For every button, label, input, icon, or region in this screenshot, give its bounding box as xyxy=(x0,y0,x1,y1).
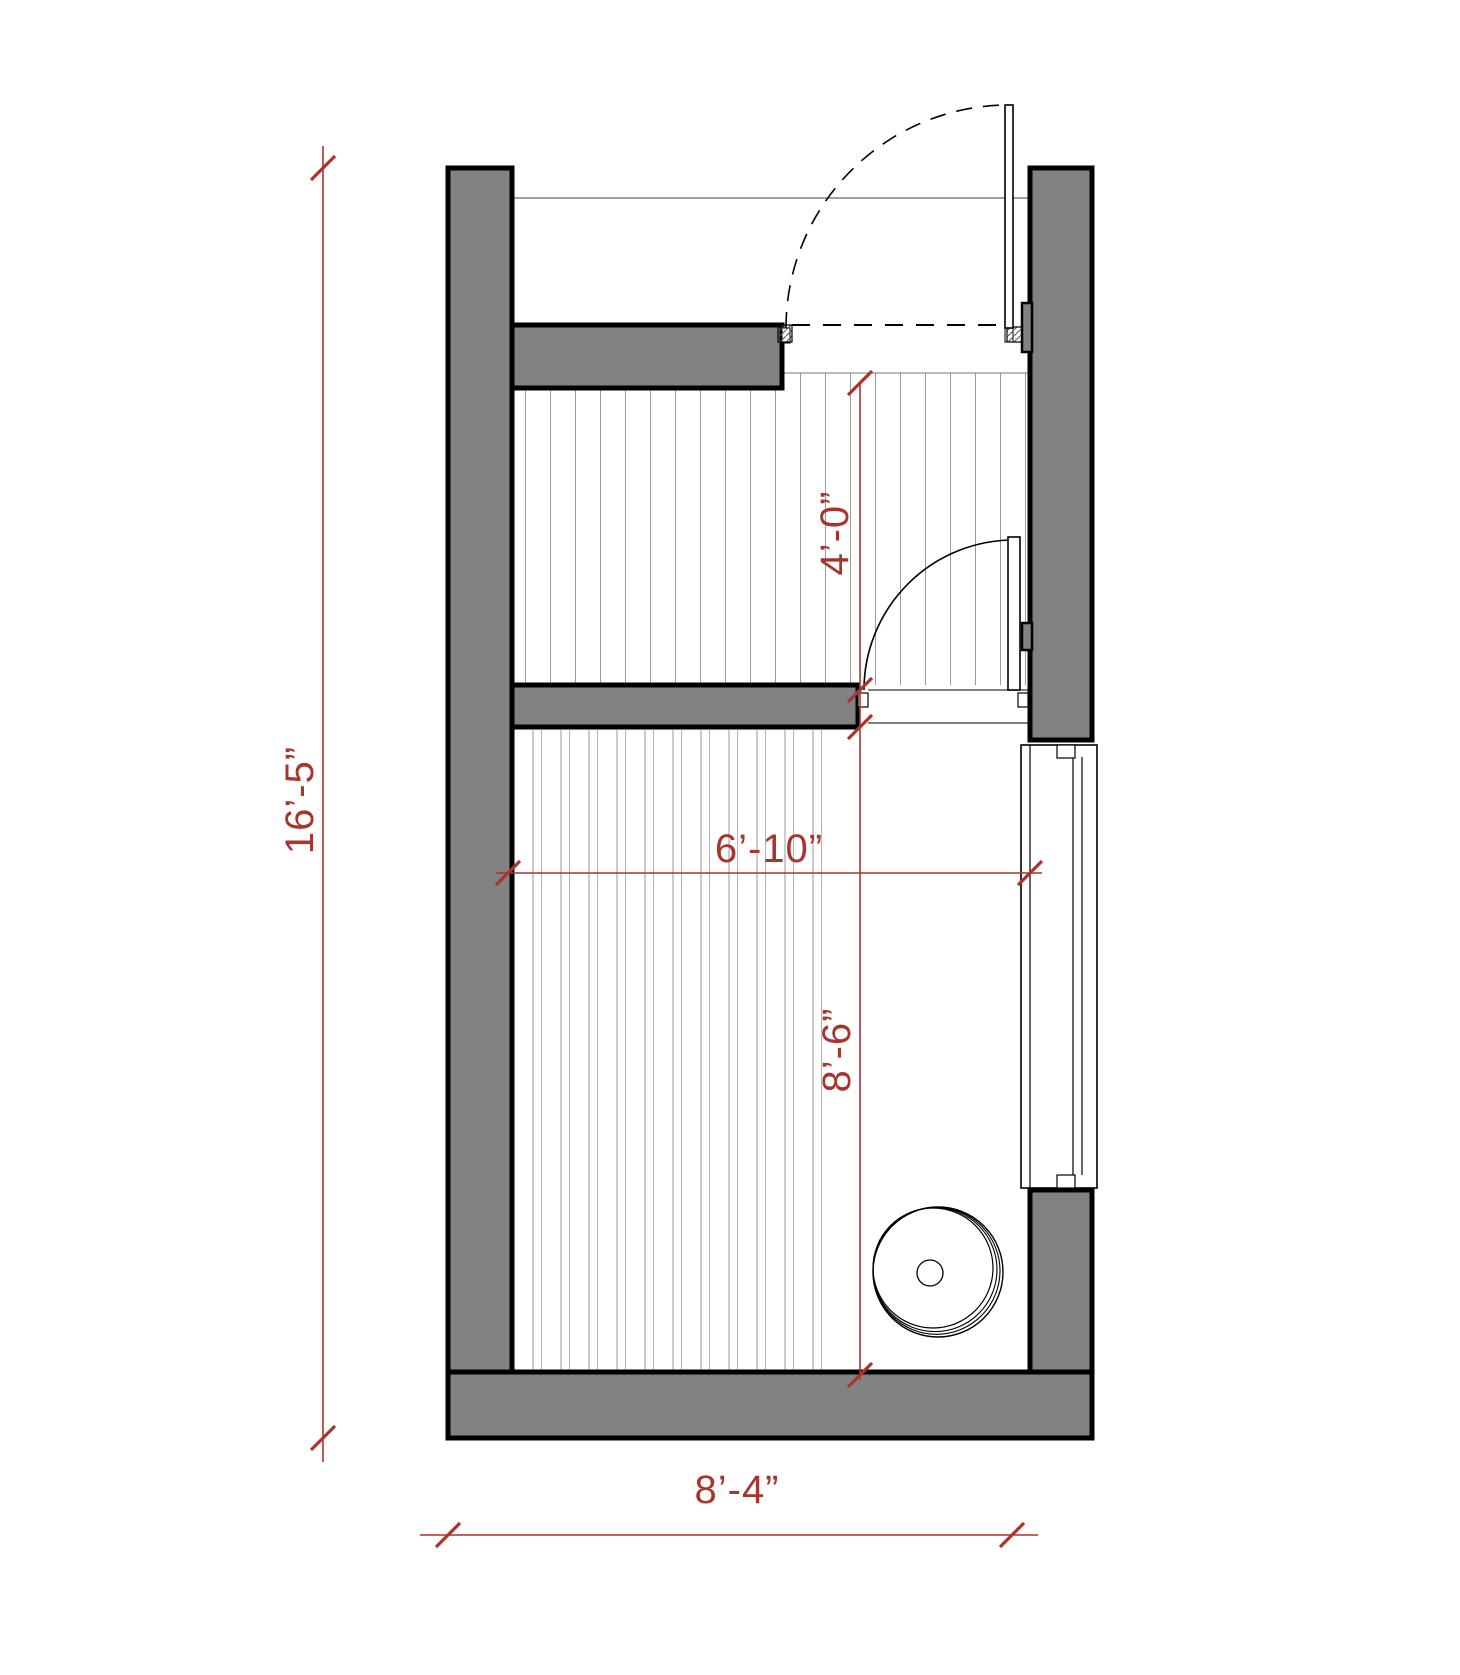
glazed-panel xyxy=(1021,745,1097,1188)
interior-door-leaf xyxy=(1008,537,1020,690)
partition-wall-middle xyxy=(512,685,858,727)
wall-right-upper xyxy=(1030,168,1092,740)
glazed-panel-frame xyxy=(1021,745,1097,1188)
wall-bottom xyxy=(448,1372,1092,1438)
entry-door-leaf xyxy=(1005,105,1013,328)
jamb-notch-middle-right xyxy=(1018,693,1028,707)
dim-label-overall-height: 16’-5” xyxy=(278,746,322,854)
heater-center-knob xyxy=(917,1260,943,1286)
glazed-panel-stop-top xyxy=(1057,745,1075,758)
entry-door-swing-arc xyxy=(786,105,1009,328)
round-heater xyxy=(873,1207,1003,1337)
dim-label-overall-width: 8’-4” xyxy=(694,1468,779,1512)
floor-plan-svg: 16’-5” 4’-0” 6’-10” 8’-6” 8’-4” xyxy=(0,0,1460,1675)
wall-left xyxy=(448,168,512,1438)
wall-jog-middle-door xyxy=(1022,623,1032,650)
glazed-panel-stop-bottom xyxy=(1057,1175,1075,1188)
dim-label-interior-width: 6’-10” xyxy=(715,827,823,871)
dim-label-upper-room-depth: 4’-0” xyxy=(813,490,857,575)
partition-wall-upper xyxy=(512,325,782,388)
floor-hatch-upper-room xyxy=(512,373,1030,685)
dim-label-lower-room-depth: 8’-6” xyxy=(815,1007,859,1092)
wall-jog-top-door xyxy=(1022,303,1032,352)
floor-plan-canvas: 16’-5” 4’-0” 6’-10” 8’-6” 8’-4” xyxy=(0,0,1460,1675)
jamb-block-top-right xyxy=(1007,327,1022,342)
jamb-block-top-left xyxy=(778,325,792,342)
